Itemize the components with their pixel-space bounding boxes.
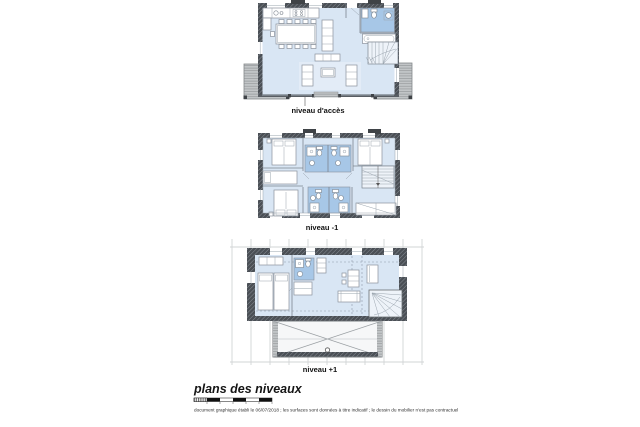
floor-plan-level-minus-1: niveau -1 — [258, 129, 400, 232]
staircase — [369, 290, 402, 317]
dining-table — [271, 20, 317, 49]
washbasin — [386, 13, 392, 19]
chimney — [291, 0, 305, 4]
level-label-access: niveau d'accès — [291, 106, 344, 115]
sink — [274, 11, 278, 15]
cabinet — [348, 270, 359, 287]
bathroom — [361, 8, 395, 32]
sofa — [338, 291, 360, 302]
staircase — [366, 42, 398, 64]
title-block: plans des niveaux document graphique éta… — [193, 382, 458, 413]
level-label-plus-1: niveau +1 — [303, 365, 337, 374]
plan-sheet: niveau d'accès — [0, 0, 640, 427]
sideboard — [315, 54, 340, 61]
toilet — [372, 12, 377, 18]
roof-vent — [325, 348, 329, 352]
kitchen-island — [322, 20, 333, 51]
chimney — [368, 0, 381, 4]
floor-plan-access-level: niveau d'accès — [244, 0, 413, 115]
sofa — [302, 65, 313, 86]
wardrobe — [259, 257, 283, 265]
bathroom-block-upper — [305, 145, 351, 172]
floor-plan-level-plus-1: niveau +1 — [230, 239, 424, 374]
level-label-minus-1: niveau -1 — [306, 223, 339, 232]
coffee-table — [321, 68, 335, 77]
bathroom-block-lower — [308, 187, 350, 213]
armchair — [367, 265, 378, 283]
plans-drawing: niveau d'accès — [0, 0, 640, 427]
threshold-step — [314, 92, 338, 97]
scale-bar — [194, 398, 272, 404]
sofa — [346, 65, 357, 86]
sheet-title: plans des niveaux — [193, 382, 303, 396]
single-bed — [263, 171, 297, 184]
lower-roof — [273, 321, 382, 357]
sheet-footnote: document graphique établi le 06/07/2018 … — [194, 408, 458, 413]
staircase — [362, 166, 394, 188]
